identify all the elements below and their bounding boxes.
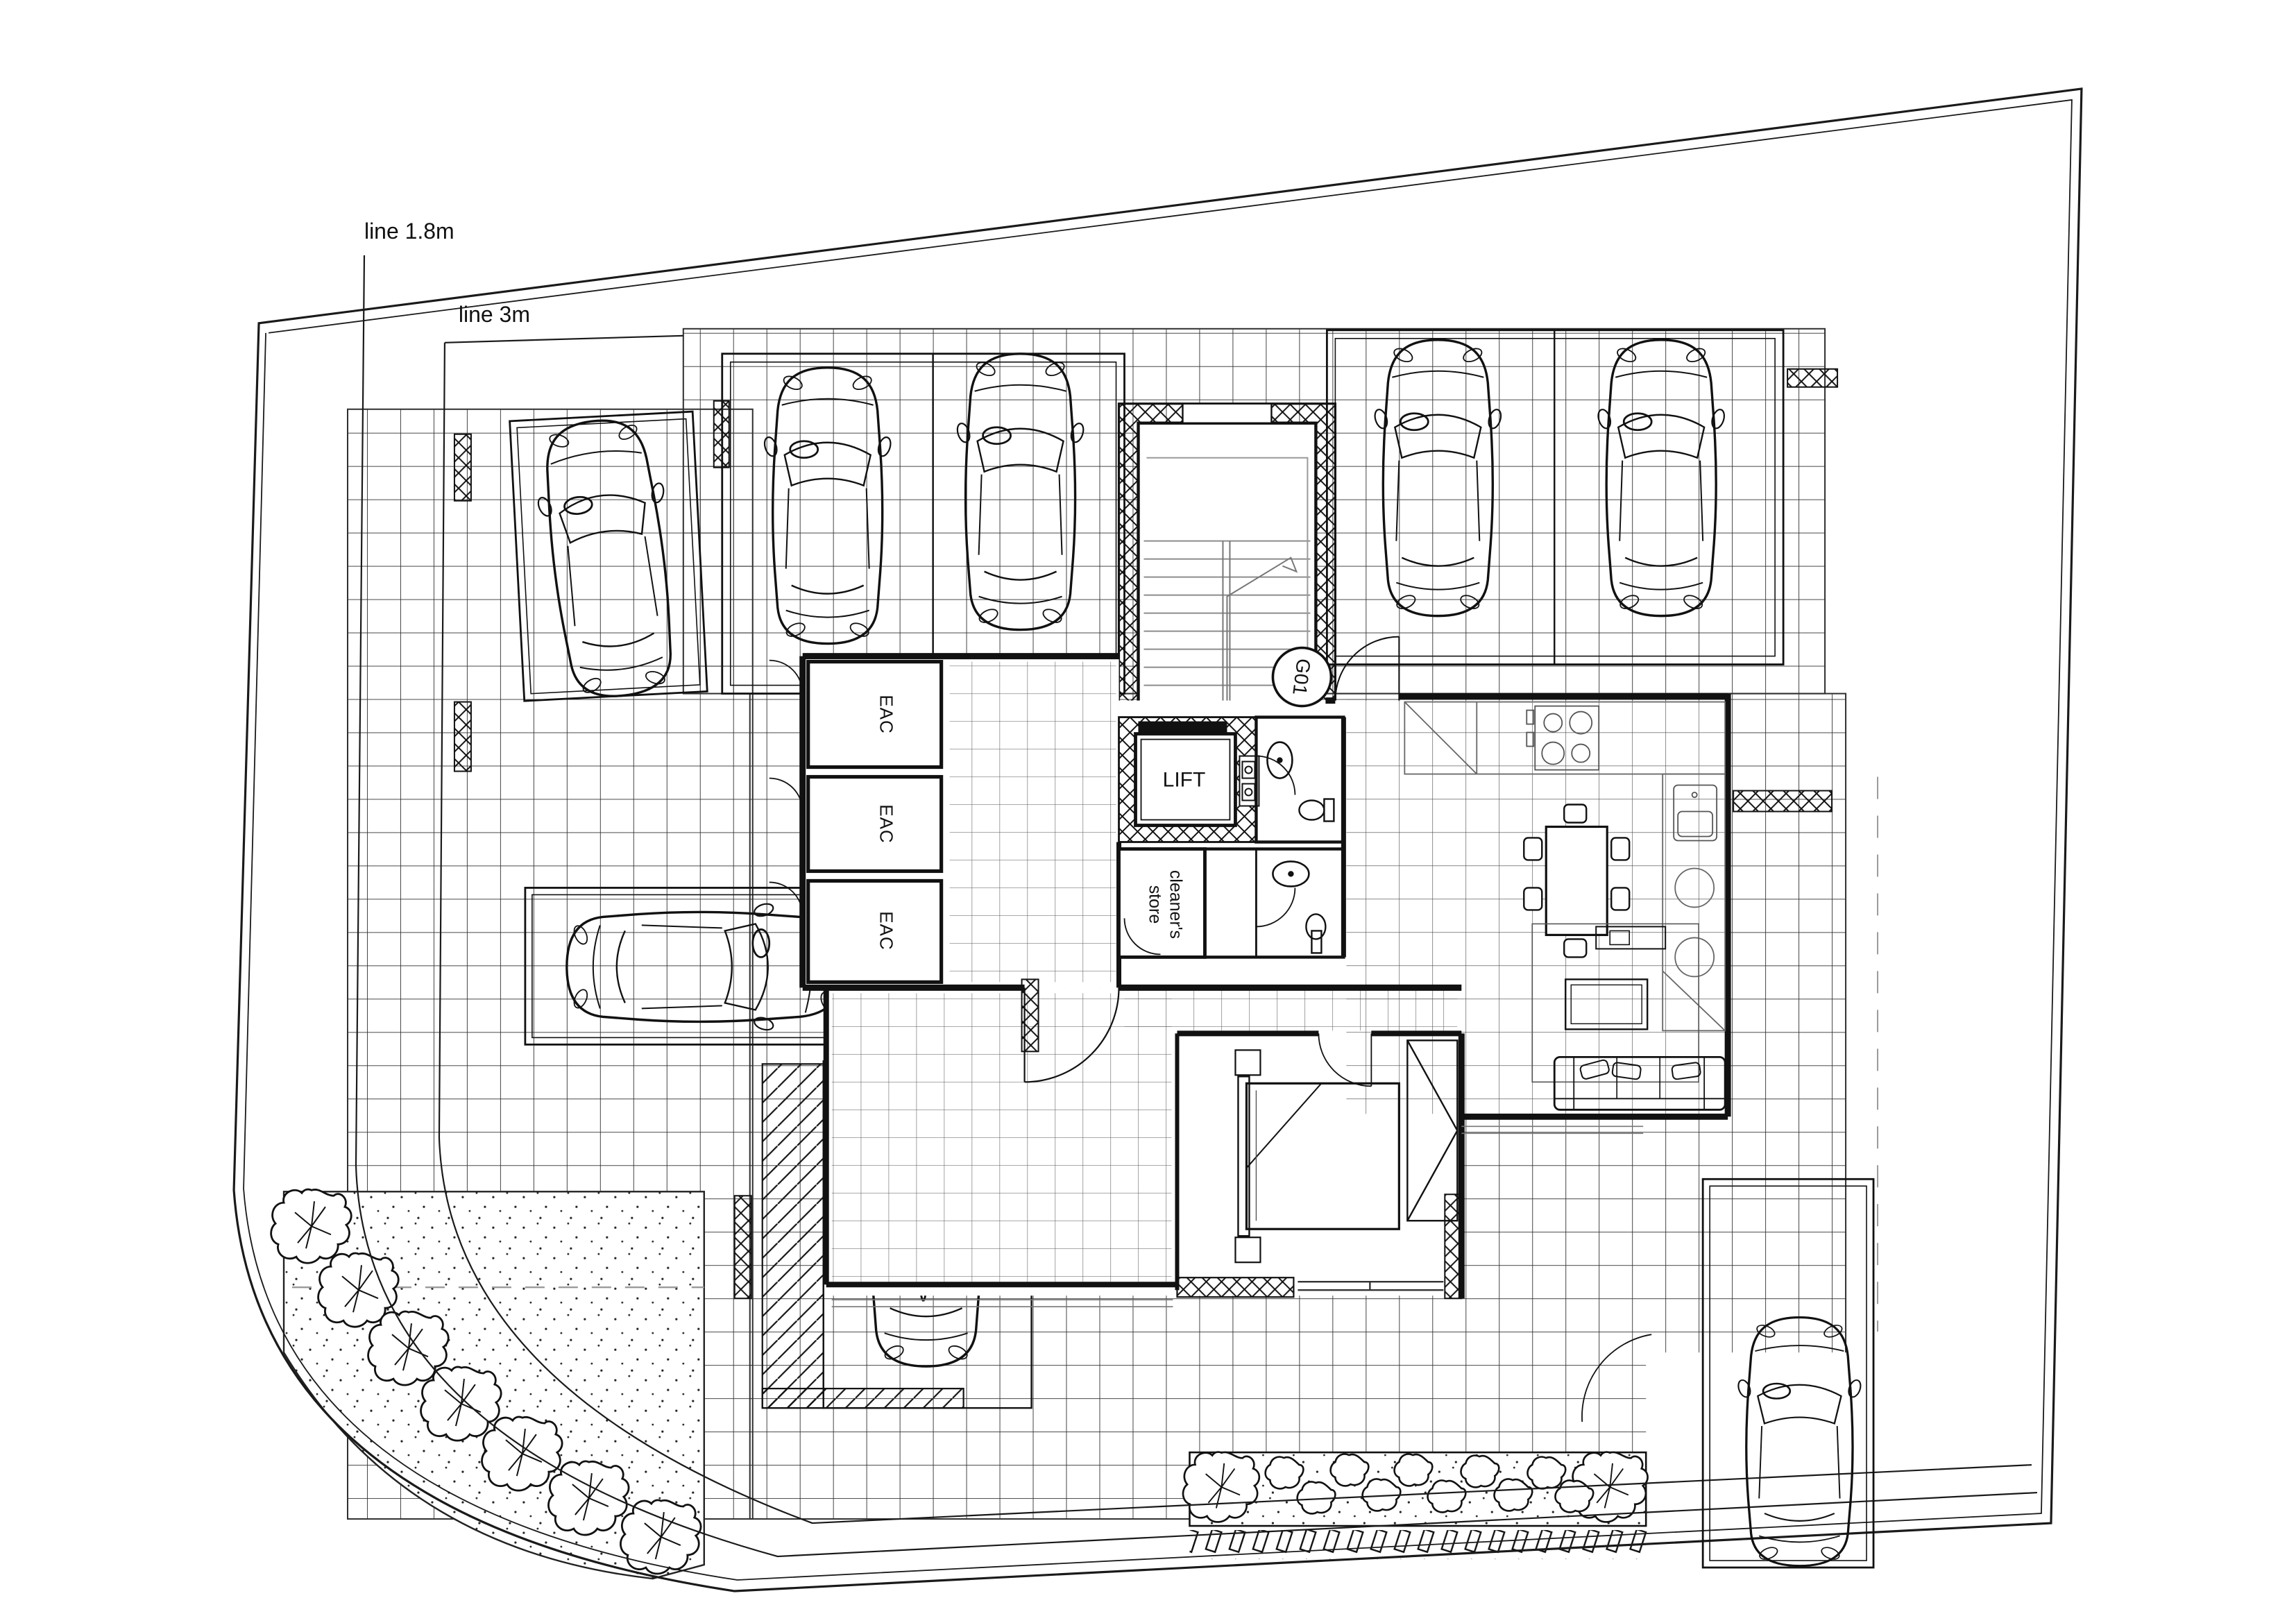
lift-shaft: LIFT	[1119, 717, 1259, 842]
lift-label: LIFT	[1163, 769, 1206, 792]
ground-blank	[1646, 1352, 2062, 1599]
unit-label: G01	[1289, 657, 1314, 696]
floor-plan-page: line 1.8m line 3m	[0, 0, 2296, 1623]
eac-label-3: EAC	[876, 911, 897, 950]
cleaners-label-1: cleaner's	[1166, 870, 1185, 939]
lobby-tiles	[950, 662, 1116, 983]
setback-label-3m: line 3m	[459, 302, 530, 327]
cleaners-store: cleaner's store	[1119, 849, 1205, 957]
setback-label-1-8m: line 1.8m	[364, 219, 454, 244]
eac-label-2: EAC	[876, 804, 897, 843]
floor-plan-canvas: line 1.8m line 3m	[0, 0, 2296, 1623]
eac-label-1: EAC	[876, 695, 897, 733]
hall-tiles	[832, 993, 1172, 1282]
planting-bed	[1183, 1452, 1648, 1559]
cleaners-label-2: store	[1145, 885, 1164, 924]
